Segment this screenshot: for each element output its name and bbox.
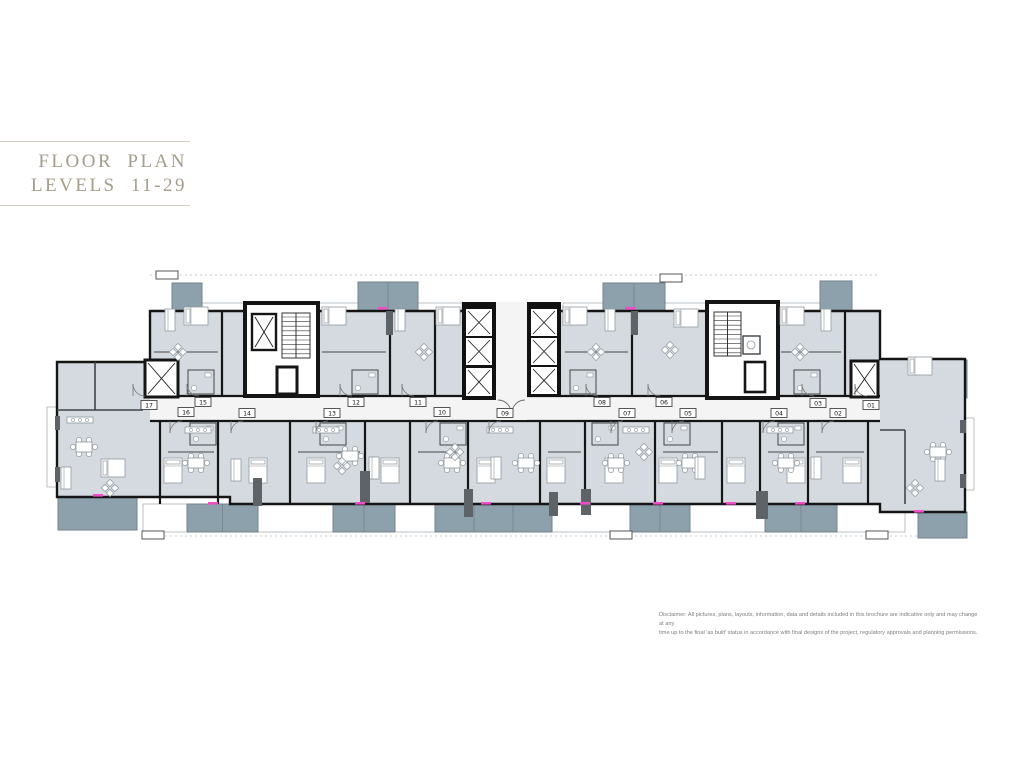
unit-number-01: 01 (867, 402, 875, 409)
unit-number-02: 02 (834, 410, 842, 417)
unit-number-17: 17 (145, 402, 153, 409)
unit-number-12: 12 (352, 399, 360, 406)
unit-tag-06: 06 (656, 398, 672, 407)
unit-tag-15: 15 (195, 398, 211, 407)
unit-tag-12: 12 (348, 398, 364, 407)
disclaimer-line-1: Disclaimer: All pictures, plans, layouts… (659, 611, 979, 629)
unit-number-14: 14 (243, 410, 251, 417)
unit-tag-05: 05 (680, 409, 696, 418)
unit-tag-11: 11 (410, 398, 426, 407)
unit-tag-14: 14 (239, 409, 255, 418)
brochure-page: FLOOR PLAN LEVELS 11-29 0102030405060708… (0, 0, 1024, 761)
unit-number-07: 07 (623, 410, 631, 417)
unit-tag-04: 04 (771, 409, 787, 418)
unit-tag-01: 01 (863, 401, 879, 410)
unit-tag-10: 10 (434, 408, 450, 417)
unit-number-09: 09 (501, 410, 509, 417)
unit-tag-16: 16 (178, 408, 194, 417)
unit-number-16: 16 (182, 409, 190, 416)
unit-number-08: 08 (598, 399, 606, 406)
unit-tag-03: 03 (810, 399, 826, 408)
unit-tag-07: 07 (619, 409, 635, 418)
floor-plan-drawing: 0102030405060708091011121314151617 (0, 0, 1024, 761)
unit-number-05: 05 (684, 410, 692, 417)
unit-tag-02: 02 (830, 409, 846, 418)
unit-number-11: 11 (414, 399, 422, 406)
unit-tag-08: 08 (594, 398, 610, 407)
unit-number-06: 06 (660, 399, 668, 406)
unit-number-10: 10 (438, 409, 446, 416)
disclaimer-text: Disclaimer: All pictures, plans, layouts… (659, 611, 979, 638)
unit-number-04: 04 (775, 410, 783, 417)
disclaimer-line-2: time up to the final 'as built' status i… (659, 629, 979, 638)
unit-number-13: 13 (328, 410, 336, 417)
unit-number-15: 15 (199, 399, 207, 406)
unit-number-03: 03 (814, 400, 822, 407)
unit-tag-17: 17 (141, 401, 157, 410)
unit-tag-09: 09 (497, 409, 513, 418)
unit-tag-13: 13 (324, 409, 340, 418)
